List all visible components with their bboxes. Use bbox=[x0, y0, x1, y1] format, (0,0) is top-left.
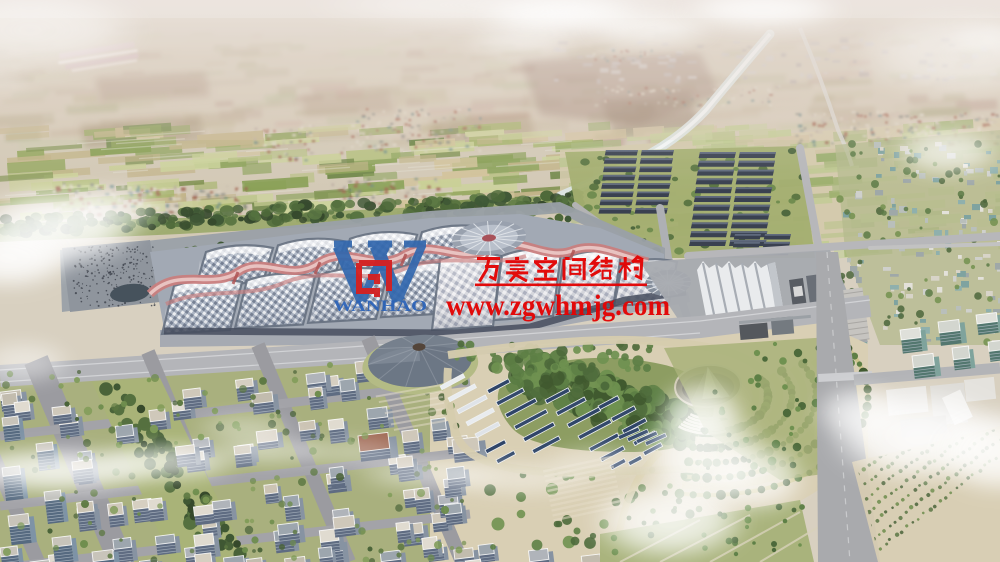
svg-text:WANHAO: WANHAO bbox=[333, 298, 427, 315]
svg-text:www.zgwhmjg.com: www.zgwhmjg.com bbox=[446, 289, 670, 322]
